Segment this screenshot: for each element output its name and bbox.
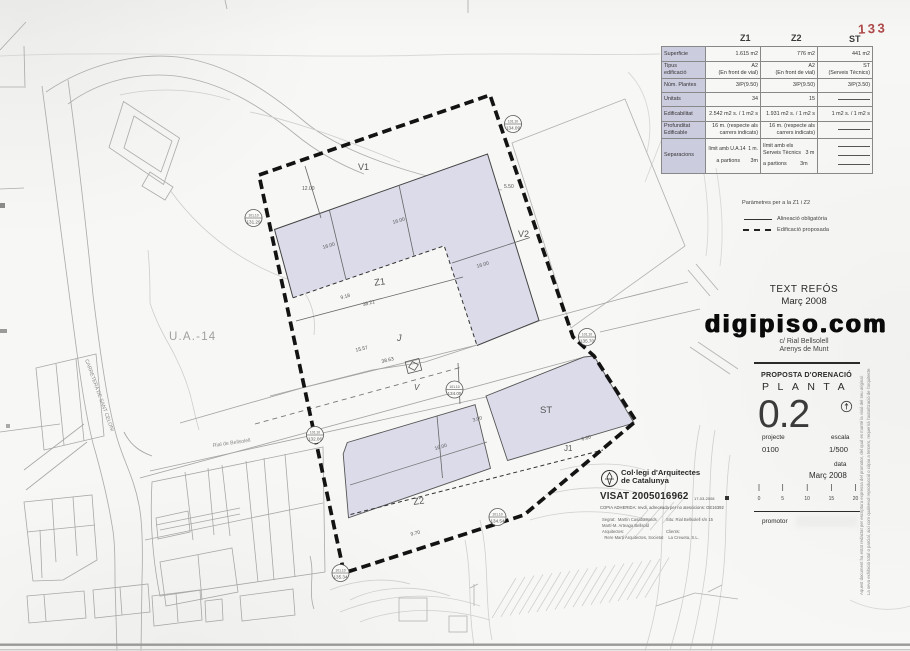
svg-text:J: J (396, 333, 402, 343)
svg-text:J1: J1 (564, 444, 573, 453)
svg-text:135.34: 135.34 (333, 575, 347, 580)
svg-text:38.21: 38.21 (362, 299, 376, 308)
svg-text:9.18: 9.18 (340, 293, 351, 301)
svg-text:V: V (414, 383, 420, 392)
svg-text:101.10: 101.10 (449, 385, 459, 389)
svg-text:101.10: 101.10 (582, 333, 592, 337)
svg-text:10: 10 (804, 496, 810, 502)
svg-text:V2: V2 (518, 229, 529, 239)
svg-text:12.00: 12.00 (302, 186, 315, 192)
svg-text:135.70: 135.70 (580, 339, 594, 344)
svg-text:Z2: Z2 (413, 495, 426, 507)
svg-text:6.00: 6.00 (581, 434, 592, 442)
svg-text:134.54: 134.54 (490, 519, 504, 524)
svg-text:0: 0 (758, 496, 761, 502)
svg-text:Rial de Bellsolell: Rial de Bellsolell (212, 438, 251, 449)
svg-text:ST: ST (540, 405, 552, 416)
svg-text:38.63: 38.63 (381, 356, 395, 365)
svg-text:5: 5 (781, 496, 784, 502)
svg-text:134.09: 134.09 (506, 126, 520, 131)
svg-text:101.10: 101.10 (310, 431, 320, 435)
svg-text:Z1: Z1 (374, 276, 387, 288)
svg-text:15.57: 15.57 (355, 345, 369, 354)
svg-text:101.10: 101.10 (492, 513, 502, 517)
svg-text:5.50: 5.50 (504, 184, 514, 190)
svg-text:132.06: 132.06 (308, 437, 322, 442)
svg-text:U.A.-14: U.A.-14 (169, 331, 216, 343)
svg-text:101.10: 101.10 (248, 214, 258, 218)
svg-text:101.10: 101.10 (335, 569, 345, 573)
svg-text:131.29: 131.29 (246, 220, 260, 225)
svg-text:V1: V1 (358, 162, 369, 172)
svg-text:101.10: 101.10 (508, 120, 518, 124)
svg-text:20: 20 (853, 496, 859, 502)
svg-text:9.70: 9.70 (410, 530, 421, 538)
svg-text:3.00: 3.00 (472, 415, 483, 423)
svg-text:15: 15 (829, 496, 835, 502)
svg-text:134.05: 134.05 (447, 391, 461, 396)
